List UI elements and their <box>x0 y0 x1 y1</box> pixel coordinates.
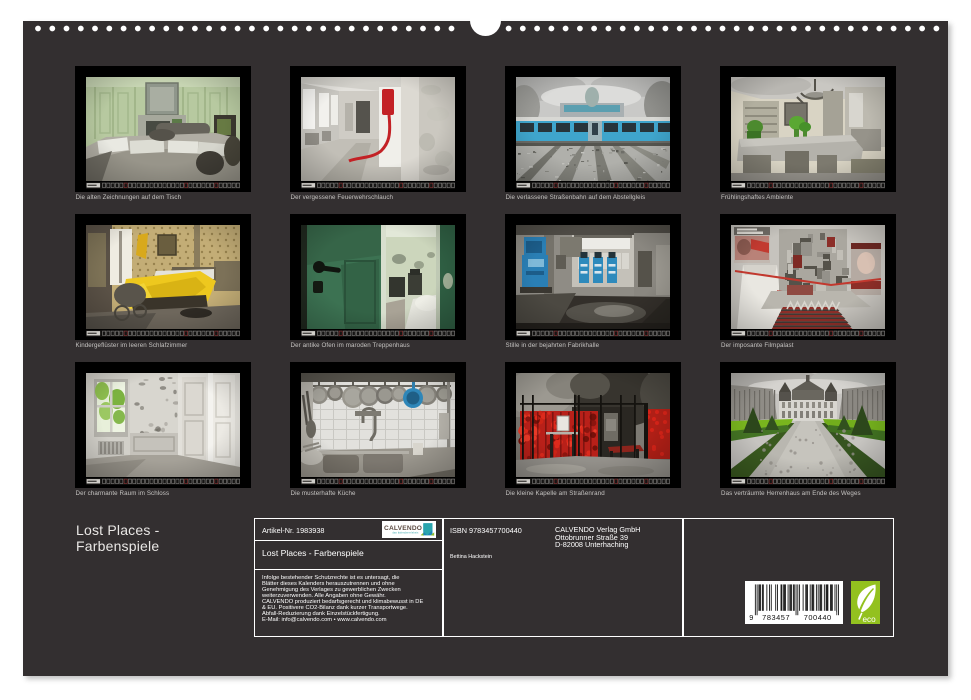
svg-text:9: 9 <box>749 613 753 622</box>
svg-text:700440: 700440 <box>804 613 832 622</box>
svg-text:eco: eco <box>863 615 877 624</box>
svg-text:das kalendererlebnis: das kalendererlebnis <box>393 531 420 534</box>
svg-text:783457: 783457 <box>762 613 790 622</box>
